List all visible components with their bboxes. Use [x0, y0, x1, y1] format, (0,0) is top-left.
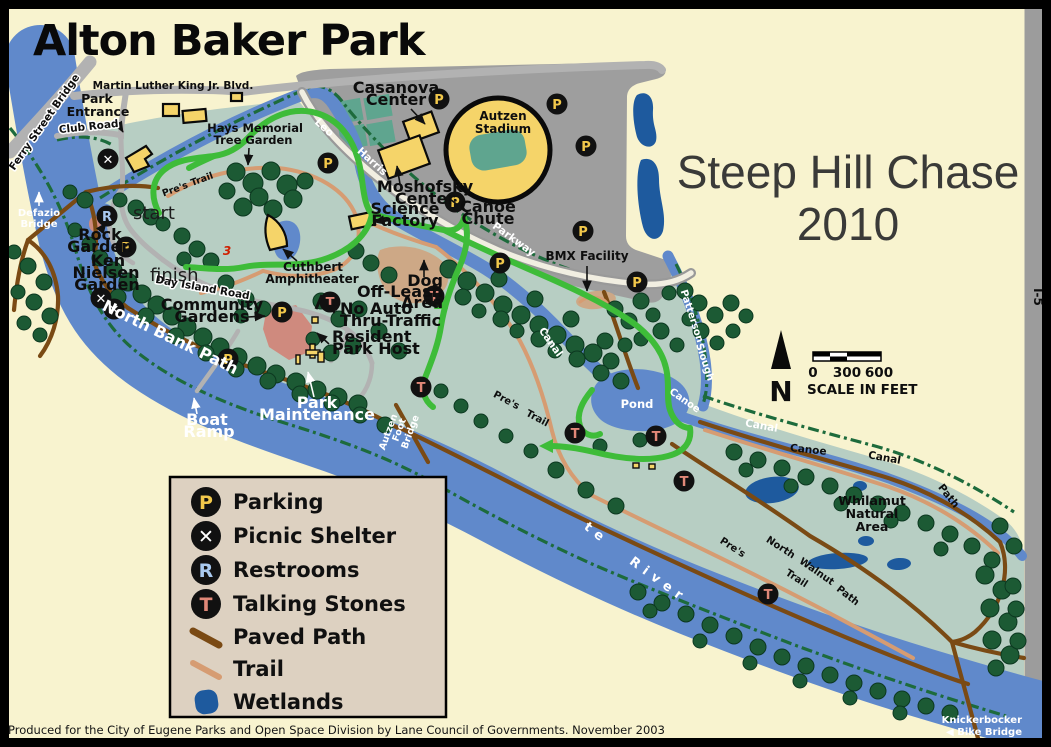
tree [739, 309, 753, 323]
tree [1005, 578, 1021, 594]
tree [363, 255, 379, 271]
tree [822, 478, 838, 494]
park-entrance-label: Entrance [67, 104, 130, 119]
boat-ramp-label: Ramp [183, 422, 234, 441]
legend-label: Parking [233, 490, 324, 514]
hays-tree-garden-label: Tree Garden [214, 133, 293, 147]
svg-text:P: P [581, 140, 591, 155]
knickerbocker-bridge-label: ◀ Bike Bridge [946, 727, 1022, 738]
tree [678, 606, 694, 622]
map-canvas: 3 PPPPPPPPPPP✕✕✕RTTTTTTT Martin Luther K… [0, 0, 1051, 747]
tree [455, 289, 471, 305]
tree [793, 674, 807, 688]
compass-north-label: N [769, 375, 792, 408]
tree [189, 241, 205, 257]
tree [20, 258, 36, 274]
tree [113, 193, 127, 207]
svg-text:P: P [323, 157, 333, 172]
tree [593, 365, 609, 381]
scale-tick: 0 [808, 365, 817, 381]
tree [381, 267, 397, 283]
tree [918, 698, 934, 714]
tree [798, 658, 814, 674]
svg-text:R: R [102, 210, 112, 225]
casanova-center-label: Center [366, 90, 426, 109]
svg-text:T: T [764, 588, 773, 603]
tree [618, 338, 632, 352]
tree [893, 706, 907, 720]
tree [250, 188, 268, 206]
tree [723, 295, 739, 311]
tree [493, 311, 509, 327]
svg-text:P: P [552, 98, 562, 113]
tree [569, 351, 585, 367]
tree [613, 373, 629, 389]
svg-text:T: T [680, 475, 689, 490]
park-map: 3 PPPPPPPPPPP✕✕✕RTTTTTTT Martin Luther K… [0, 0, 1051, 747]
tree [750, 639, 766, 655]
tree [964, 538, 980, 554]
i5-highway [1025, 8, 1044, 710]
park-maintenance-label: Maintenance [259, 405, 375, 424]
restroom-icon: R [97, 206, 118, 227]
tree [548, 462, 564, 478]
talking-icon: T [320, 292, 341, 313]
bmx-facility-label: BMX Facility [545, 249, 628, 263]
tree [653, 323, 669, 339]
parking-icon: P [199, 492, 213, 514]
autzen-stadium-label: Autzen [479, 109, 526, 123]
tree [63, 185, 77, 199]
legend-label: Trail [233, 657, 284, 681]
tree [822, 667, 838, 683]
tree [17, 316, 31, 330]
tree [670, 338, 684, 352]
tree [248, 357, 266, 375]
tree [774, 460, 790, 476]
tree [578, 482, 594, 498]
tree [798, 469, 814, 485]
tree [260, 373, 276, 389]
tree [726, 628, 742, 644]
tree [608, 498, 624, 514]
autzen-stadium-label: Stadium [475, 122, 531, 136]
tree [227, 163, 245, 181]
defazio-bridge-label: Bridge [20, 219, 57, 230]
tree [894, 691, 910, 707]
tree [476, 284, 494, 302]
parking-icon: P [272, 302, 293, 323]
tree [992, 518, 1008, 534]
tree [983, 631, 1001, 649]
tree [284, 190, 302, 208]
mlk-blvd-label: Martin Luther King Jr. Blvd. [93, 80, 254, 92]
tree [264, 200, 282, 218]
svg-text:T: T [417, 381, 426, 396]
talking-icon: T [646, 426, 667, 447]
route-mile-marker: 3 [223, 244, 231, 258]
scale-tick: 600 [865, 365, 893, 381]
parking-icon: P [490, 253, 511, 274]
event-year: 2010 [797, 198, 899, 250]
tree [36, 274, 52, 290]
knickerbocker-bridge-label: Knickerbocker [942, 715, 1022, 726]
tree [563, 311, 579, 327]
talking-icon: T [411, 377, 432, 398]
tree [646, 308, 660, 322]
parking-icon: P [576, 136, 597, 157]
svg-text:P: P [632, 276, 642, 291]
picnic-icon: ✕ [98, 149, 119, 170]
tree [707, 307, 723, 323]
tree [633, 433, 647, 447]
tree [510, 324, 524, 338]
tree [26, 294, 42, 310]
tree [177, 252, 191, 266]
legend-label: Paved Path [233, 625, 366, 649]
route-finish-label: finish [150, 265, 199, 286]
tree [726, 444, 742, 460]
tree [702, 617, 718, 633]
svg-text:P: P [495, 257, 505, 272]
tree [942, 526, 958, 542]
tree [643, 604, 657, 618]
tree [784, 479, 798, 493]
tree [33, 328, 47, 342]
tree [743, 656, 757, 670]
picnic-shelter-icon: ✕ [198, 526, 214, 548]
tree [234, 198, 252, 216]
legend-label: Talking Stones [233, 592, 406, 616]
tree [988, 660, 1004, 676]
scale-caption: SCALE IN FEET [807, 382, 918, 398]
credit-line: Produced for the City of Eugene Parks an… [8, 723, 665, 737]
tree [693, 634, 707, 648]
tree [726, 324, 740, 338]
tree [1008, 601, 1024, 617]
tree [219, 183, 235, 199]
talking-icon: T [565, 423, 586, 444]
tree [934, 542, 948, 556]
tree [7, 245, 21, 259]
svg-text:T: T [652, 430, 661, 445]
legend: P Parking ✕ Picnic Shelter R Restrooms T… [170, 477, 446, 717]
tree [846, 675, 862, 691]
tree [633, 293, 649, 309]
legend-label: Restrooms [233, 558, 360, 582]
tree [774, 649, 790, 665]
parking-icon: P [547, 94, 568, 115]
ken-nielsen-garden-label: Garden [74, 275, 140, 294]
defazio-bridge-label: Defazio [18, 208, 60, 219]
tree [1006, 538, 1022, 554]
tree [42, 308, 58, 324]
cuthbert-amphitheater-label: Amphitheater [265, 272, 358, 286]
tree [527, 291, 543, 307]
tree [11, 285, 25, 299]
parking-icon: P [318, 153, 339, 174]
scale-tick: 300 [833, 365, 861, 381]
tree [739, 463, 753, 477]
tree [499, 429, 513, 443]
tree [434, 384, 448, 398]
talking-icon: T [674, 471, 695, 492]
route-start-label: start [133, 203, 175, 224]
community-gardens-label: Gardens [174, 307, 249, 326]
tree [870, 683, 886, 699]
resident-park-host-label: Park Host [332, 339, 420, 358]
tree [630, 584, 646, 600]
talking-stones-icon: T [200, 594, 213, 616]
science-factory-label: Factory [371, 211, 439, 230]
tree [1010, 633, 1026, 649]
talking-icon: T [758, 584, 779, 605]
svg-text:P: P [277, 306, 287, 321]
tree [750, 452, 766, 468]
tree [297, 173, 313, 189]
tree [77, 192, 93, 208]
whilamut-label: Area [856, 519, 889, 534]
tree [843, 691, 857, 705]
tree [512, 306, 530, 324]
tree [984, 552, 1000, 568]
page-title: Alton Baker Park [33, 16, 427, 66]
tree [458, 272, 476, 290]
svg-text:T: T [571, 427, 580, 442]
tree [524, 444, 538, 458]
tree [474, 414, 488, 428]
tree [454, 399, 468, 413]
canoe-chute-label: Chute [461, 209, 514, 228]
tree [472, 304, 486, 318]
tree [597, 333, 613, 349]
tree [662, 286, 676, 300]
tree [976, 566, 994, 584]
tree [174, 228, 190, 244]
restrooms-icon: R [199, 560, 214, 582]
parking-icon: P [627, 272, 648, 293]
tree [262, 162, 280, 180]
pond-label: Pond [621, 397, 654, 411]
event-title: Steep Hill Chase [677, 146, 1020, 198]
parking-icon: P [573, 221, 594, 242]
tree [981, 599, 999, 617]
svg-text:P: P [578, 225, 588, 240]
legend-label: Wetlands [233, 690, 344, 714]
tree [710, 336, 724, 350]
svg-text:✕: ✕ [103, 153, 114, 168]
legend-label: Picnic Shelter [233, 524, 397, 548]
tree [918, 515, 934, 531]
